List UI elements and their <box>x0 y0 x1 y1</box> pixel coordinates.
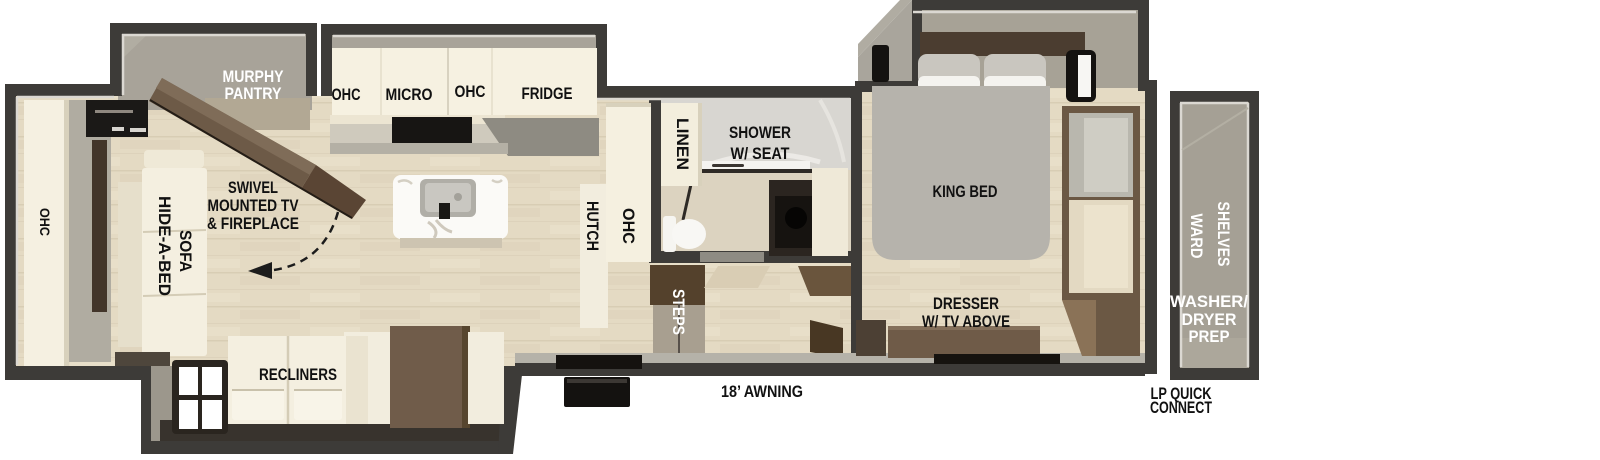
svg-text:STEPS: STEPS <box>669 289 688 335</box>
svg-text:SHELVES: SHELVES <box>1214 202 1233 267</box>
svg-text:MICRO: MICRO <box>386 85 433 104</box>
svg-text:KING BED: KING BED <box>933 182 998 201</box>
svg-text:OHC: OHC <box>455 82 486 101</box>
svg-text:18’ AWNING: 18’ AWNING <box>721 382 803 401</box>
svg-text:MOUNTED TV: MOUNTED TV <box>208 196 300 215</box>
svg-text:LINEN: LINEN <box>673 118 692 170</box>
svg-text:W/ SEAT: W/ SEAT <box>731 144 791 163</box>
svg-text:OHC: OHC <box>37 208 53 236</box>
svg-text:SHOWER: SHOWER <box>729 123 791 142</box>
svg-text:HUTCH: HUTCH <box>583 201 602 251</box>
svg-text:SOFA: SOFA <box>176 230 195 272</box>
svg-text:PANTRY: PANTRY <box>225 84 283 103</box>
svg-text:HIDE-A-BED: HIDE-A-BED <box>155 196 174 296</box>
svg-text:W/ TV ABOVE: W/ TV ABOVE <box>922 312 1010 331</box>
svg-text:FRIDGE: FRIDGE <box>522 84 573 103</box>
svg-text:CONNECT: CONNECT <box>1150 398 1212 417</box>
svg-text:OHC: OHC <box>619 208 638 244</box>
svg-text:RECLINERS: RECLINERS <box>259 365 337 384</box>
svg-text:WARD: WARD <box>1187 214 1206 259</box>
svg-text:OHC: OHC <box>332 85 361 104</box>
svg-text:PREP: PREP <box>1189 327 1230 346</box>
svg-text:WASHER/: WASHER/ <box>1170 292 1248 311</box>
svg-text:SWIVEL: SWIVEL <box>228 178 278 197</box>
svg-text:& FIREPLACE: & FIREPLACE <box>207 214 299 233</box>
svg-text:DRESSER: DRESSER <box>933 294 999 313</box>
